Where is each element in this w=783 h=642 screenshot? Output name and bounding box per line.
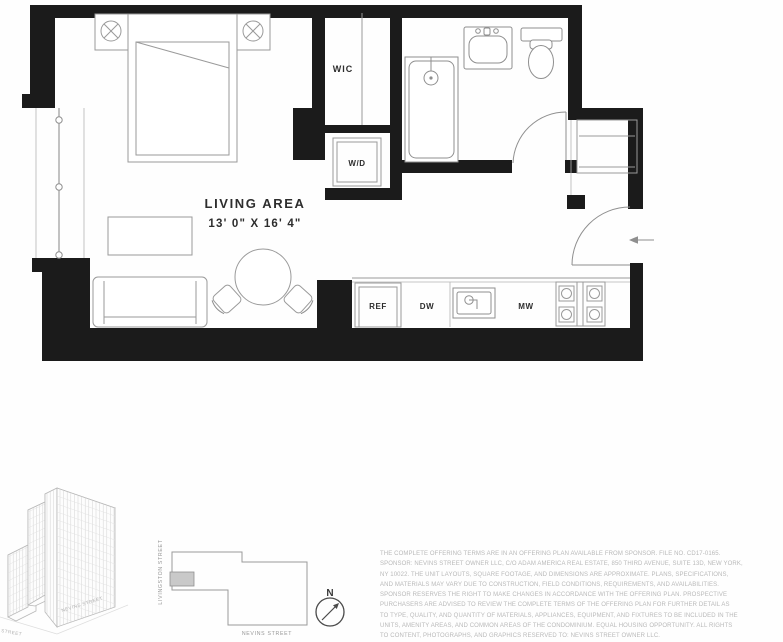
building-axon: LIVINGSTON STREET NEVINS STREET	[0, 455, 160, 642]
disclaimer-line: SPONSOR RESERVES THE RIGHT TO MAKE CHANG…	[380, 590, 778, 600]
sofa	[93, 277, 207, 327]
bathroom-door	[513, 112, 566, 163]
map-street-bottom-label: NEVINS STREET	[242, 631, 292, 637]
living-area-dimensions: 13' 0" X 16' 4"	[208, 218, 301, 230]
shower	[405, 57, 458, 162]
dining-table	[235, 249, 291, 305]
disclaimer-line: AND MATERIALS MAY VARY DUE TO CONSTRUCTI…	[380, 580, 778, 590]
compass-icon: N	[316, 588, 344, 626]
window-left	[36, 108, 84, 258]
disclaimer-line: SPONSOR: NEVINS STREET OWNER LLC, C/O AD…	[380, 559, 778, 569]
entry-door	[572, 207, 630, 265]
building-massing	[8, 486, 115, 636]
entry-closet	[571, 120, 637, 195]
wic-label: WIC	[333, 64, 354, 74]
map-street-left-label: LIVINGSTON STREET	[158, 540, 164, 605]
disclaimer-text: THE COMPLETE OFFERING TERMS ARE IN AN OF…	[380, 549, 778, 642]
disclaimer-line: NY 10022. THE UNIT LAYOUTS, SQUARE FOOTA…	[380, 570, 778, 580]
unit-location-highlight	[170, 572, 194, 586]
building-footprint	[172, 552, 307, 625]
bathroom-sink	[464, 27, 512, 69]
toilet	[521, 28, 562, 79]
washer-dryer-label: W/D	[348, 159, 365, 168]
axon-street-left-label: LIVINGSTON STREET	[0, 622, 22, 637]
microwave-label: MW	[518, 302, 533, 311]
disclaimer-line: TO TYPE, QUALITY, AND QUANTITY OF MATERI…	[380, 611, 778, 621]
site-map: LIVINGSTON STREET NEVINS STREET N	[150, 540, 360, 642]
floorplan-page: WIC W/D	[0, 0, 783, 642]
kitchen-sink	[453, 288, 495, 318]
refrigerator: REF	[355, 283, 401, 327]
refrigerator-label: REF	[369, 302, 387, 311]
dishwasher: DW	[420, 282, 450, 327]
floor-plan: WIC W/D	[0, 0, 660, 370]
stove	[556, 282, 605, 326]
living-area-label: LIVING AREA	[205, 196, 306, 211]
nightstand-left	[95, 14, 128, 50]
washer-dryer: W/D	[333, 138, 381, 186]
bed	[128, 14, 237, 162]
compass-north-label: N	[326, 588, 333, 599]
disclaimer-line: TO CONTENT, PHOTOGRAPHS, AND GRAPHICS RE…	[380, 631, 778, 641]
entry-arrow-icon	[629, 236, 654, 244]
kitchen: REF DW MW	[352, 278, 630, 327]
disclaimer-line: THE COMPLETE OFFERING TERMS ARE IN AN OF…	[380, 549, 778, 559]
microwave: MW	[518, 302, 533, 311]
nightstand-right	[237, 14, 270, 50]
disclaimer-line: PURCHASERS ARE ADVISED TO REVIEW THE COM…	[380, 600, 778, 610]
wic-room: WIC	[333, 13, 362, 125]
coffee-table	[108, 217, 192, 255]
dishwasher-label: DW	[420, 302, 435, 311]
disclaimer-line: UNITS, AMENITY AREAS, AND COMMON AREAS O…	[380, 621, 778, 631]
